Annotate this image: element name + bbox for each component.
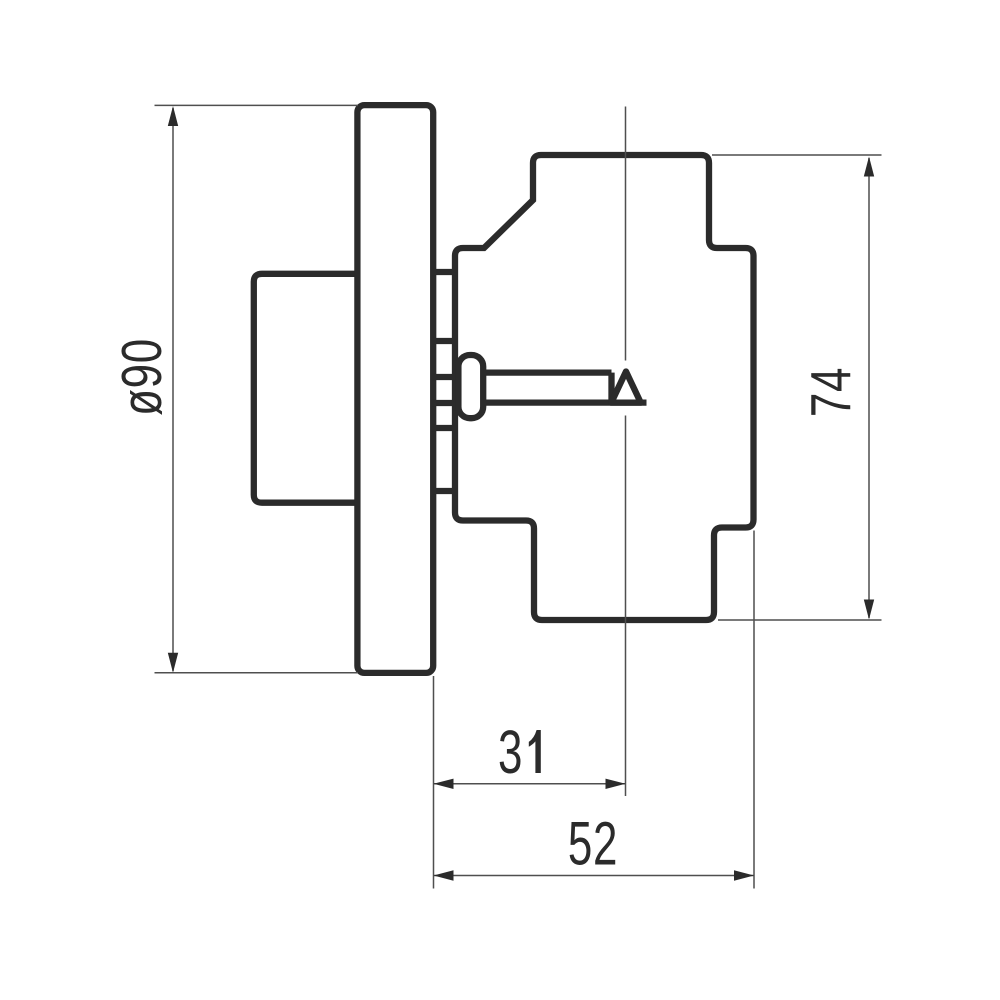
svg-text:3: 3 bbox=[498, 719, 523, 787]
svg-text:ø90: ø90 bbox=[110, 338, 173, 416]
svg-text:52: 52 bbox=[568, 811, 618, 879]
svg-text:74: 74 bbox=[799, 367, 862, 417]
